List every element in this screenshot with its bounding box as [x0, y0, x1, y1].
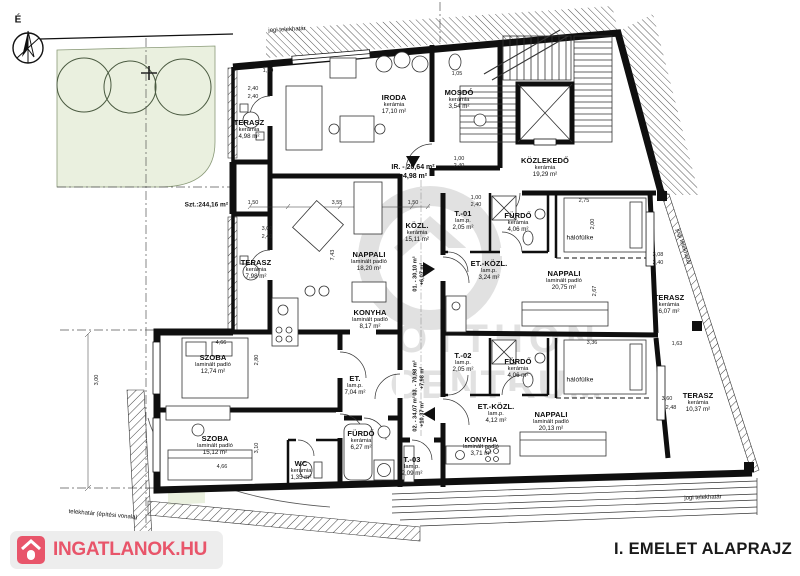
floor-plan-drawing: OTTHON CENTRUM	[0, 0, 800, 576]
dimension-label: 7,43	[330, 250, 336, 261]
room-label-nappali-02: NAPPALIlaminált padló20,13 m²	[533, 411, 569, 433]
dimension-label: 3,00	[262, 226, 273, 232]
room-label-terasz-02: TERASZkerámia10,37 m²	[683, 392, 714, 414]
lot-line-top	[40, 34, 233, 39]
room-name: hálófülke	[567, 376, 594, 383]
room-label-terasz-office: TERASZkerámia4,98 m²	[234, 119, 265, 141]
room-label-nappali-03: NAPPALIlaminált padló18,20 m²	[351, 251, 387, 273]
room-label-szoba-1: SZOBAlaminált padló12,74 m²	[195, 354, 231, 376]
brand-logo-text: INGATLANOK.HU	[53, 539, 207, 561]
room-area: 2,05 m²	[453, 225, 474, 232]
room-area: 17,10 m²	[382, 109, 407, 116]
unit-total-office: IR. - 20,64 m²+4,98 m²	[391, 163, 434, 181]
room-name: TERASZ	[234, 119, 265, 127]
room-name: T.-03	[402, 456, 423, 464]
dimension-label: 3,55	[332, 200, 343, 206]
room-name: KONYHA	[352, 309, 388, 317]
room-label-mosdo: MOSDÓkerámia3,54 m²	[445, 89, 474, 111]
room-area: 3,71 m²	[463, 451, 499, 458]
room-name: NAPPALI	[546, 270, 582, 278]
room-name: T.-02	[453, 352, 474, 360]
dimension-label: 1,63	[672, 341, 683, 347]
unit-total-line: +6,07 m²	[420, 256, 427, 291]
room-label-t01: T.-01lam.p.2,05 m²	[453, 210, 474, 232]
room-label-furdo-03: FÜRDŐkerámia6,27 m²	[347, 430, 374, 452]
room-area: 12,74 m²	[195, 369, 231, 376]
room-area: 7,98 m²	[241, 274, 272, 281]
room-area: 20,75 m²	[546, 285, 582, 292]
room-area: 6,07 m²	[654, 309, 685, 316]
room-area: 1,35 m²	[291, 475, 312, 482]
room-name: ET.-KÖZL.	[471, 260, 508, 268]
unit-total-line: +7,98 m²	[420, 360, 427, 395]
room-area: 4,06 m²	[504, 373, 531, 380]
room-name: ET.-KÖZL.	[478, 403, 515, 411]
site-area-label: Szt.:244,16 m²	[185, 202, 228, 209]
dimension-label: 3,00	[94, 375, 100, 386]
room-area: 4,06 m²	[504, 227, 531, 234]
unit-total-line: IR. - 20,64 m²	[391, 163, 434, 172]
dimension-label: 1,50	[263, 68, 274, 74]
room-name: KONYHA	[463, 436, 499, 444]
dimension-label: 2,40	[471, 202, 482, 208]
compass-icon	[13, 31, 43, 63]
dimension-label: 3,60	[662, 396, 673, 402]
unit-total-02: 02. - 34,07 m²+10,37 m²	[413, 396, 428, 431]
room-name: FÜRDŐ	[504, 212, 531, 220]
room-area: 7,04 m²	[345, 390, 366, 397]
room-label-konyha-03: KONYHAlaminált padló8,17 m²	[352, 309, 388, 331]
room-name: FÜRDŐ	[347, 430, 374, 438]
room-name: hálófülke	[567, 234, 594, 241]
room-area: 3,24 m²	[471, 275, 508, 282]
dimension-label: 3,08	[653, 252, 664, 258]
room-name: TERASZ	[241, 259, 272, 267]
dimension-label: 1,50	[248, 200, 259, 206]
room-name: KÖZL.	[405, 222, 429, 230]
dimension-label: 2,40	[248, 94, 259, 100]
room-label-terasz-03: TERASZkerámia7,98 m²	[241, 259, 272, 281]
dimension-label: 3,10	[254, 443, 260, 454]
room-label-furdo-02: FÜRDŐkerámia4,06 m²	[504, 358, 531, 380]
dimension-label: 2,75	[579, 198, 590, 204]
room-label-halofulke-01: hálófülke	[567, 234, 594, 241]
room-area: 2,05 m²	[453, 367, 474, 374]
room-area: 19,29 m²	[521, 172, 569, 179]
north-label: É	[15, 15, 22, 26]
dimension-label: 1,00	[471, 195, 482, 201]
room-name: IRODA	[382, 94, 407, 102]
room-label-iroda: IRODAkerámia17,10 m²	[382, 94, 407, 116]
dimension-label: 2,40	[653, 260, 664, 266]
room-area: 8,17 m²	[352, 324, 388, 331]
room-name: ET.	[345, 375, 366, 383]
room-name: SZOBA	[197, 435, 233, 443]
brand-logo: INGATLANOK.HU	[10, 531, 223, 569]
room-name: TERASZ	[683, 392, 714, 400]
room-name: WC	[291, 460, 312, 468]
unit-total-line: +10,37 m²	[420, 396, 427, 431]
room-label-t02: T.-02lam.p.2,05 m²	[453, 352, 474, 374]
dimension-label: 4,66	[217, 464, 228, 470]
unit-total-01: 01. - 30,10 m²+6,07 m²	[413, 256, 428, 291]
dimension-label: 4,66	[216, 340, 227, 346]
room-area: 15,12 m²	[197, 450, 233, 457]
room-area: 15,11 m²	[405, 237, 429, 244]
dimension-label: 1,50	[408, 200, 419, 206]
room-label-wc: WCkerámia1,35 m²	[291, 460, 312, 482]
room-name: NAPPALI	[533, 411, 569, 419]
unit-total-line: +4,98 m²	[391, 172, 434, 181]
room-label-kozl: KÖZL.kerámia15,11 m²	[405, 222, 429, 244]
room-label-etkozl-02: ET.-KÖZL.lam.p.4,12 m²	[478, 403, 515, 425]
room-label-furdo-01: FÜRDŐkerámia4,06 m²	[504, 212, 531, 234]
dimension-label: 2,80	[254, 355, 260, 366]
dimension-label: 2,00	[590, 219, 596, 230]
elevator	[518, 84, 572, 145]
room-area: 2,09 m²	[402, 471, 423, 478]
room-area: 4,12 m²	[478, 418, 515, 425]
dimension-label: 2,40	[248, 86, 259, 92]
dimension-label: 3,36	[587, 340, 598, 346]
room-area: 3,54 m²	[445, 104, 474, 111]
page-title: I. EMELET ALAPRAJZ	[614, 540, 792, 559]
room-label-konyha-02: KONYHAlaminált padló3,71 m²	[463, 436, 499, 458]
room-area: 20,13 m²	[533, 426, 569, 433]
dimension-label: 2,67	[592, 286, 598, 297]
room-label-halofulke-02: hálófülke	[567, 376, 594, 383]
dimension-label: 1,05	[452, 71, 463, 77]
dimension-label: 2,48	[666, 405, 677, 411]
room-label-terasz-01: TERASZkerámia6,07 m²	[654, 294, 685, 316]
room-name: FÜRDŐ	[504, 358, 531, 366]
room-area: 18,20 m²	[351, 266, 387, 273]
unit-total-03: 03. - 70,98 m²+7,98 m²	[413, 360, 428, 395]
logo-house-icon	[16, 535, 46, 565]
dimension-label: 2,40	[454, 163, 465, 169]
floor-plan-page: OTTHON CENTRUM	[0, 0, 800, 576]
room-name: T.-01	[453, 210, 474, 218]
room-area: 6,27 m²	[347, 445, 374, 452]
room-label-et-03: ET.lam.p.7,04 m²	[345, 375, 366, 397]
dimension-label: 2,40	[262, 234, 273, 240]
room-area: 4,98 m²	[234, 134, 265, 141]
room-label-etkozl-01: ET.-KÖZL.lam.p.3,24 m²	[471, 260, 508, 282]
room-label-t03: T.-03lam.p.2,09 m²	[402, 456, 423, 478]
room-name: TERASZ	[654, 294, 685, 302]
room-name: KÖZLEKEDŐ	[521, 157, 569, 165]
dimension-label: 1,00	[454, 156, 465, 162]
room-name: SZOBA	[195, 354, 231, 362]
room-label-nappali-01: NAPPALIlaminált padló20,75 m²	[546, 270, 582, 292]
room-area: 10,37 m²	[683, 407, 714, 414]
room-label-kozlekedo: KÖZLEKEDŐkerámia19,29 m²	[521, 157, 569, 179]
room-name: MOSDÓ	[445, 89, 474, 97]
room-label-szoba-2: SZOBAlaminált padló15,12 m²	[197, 435, 233, 457]
room-name: NAPPALI	[351, 251, 387, 259]
